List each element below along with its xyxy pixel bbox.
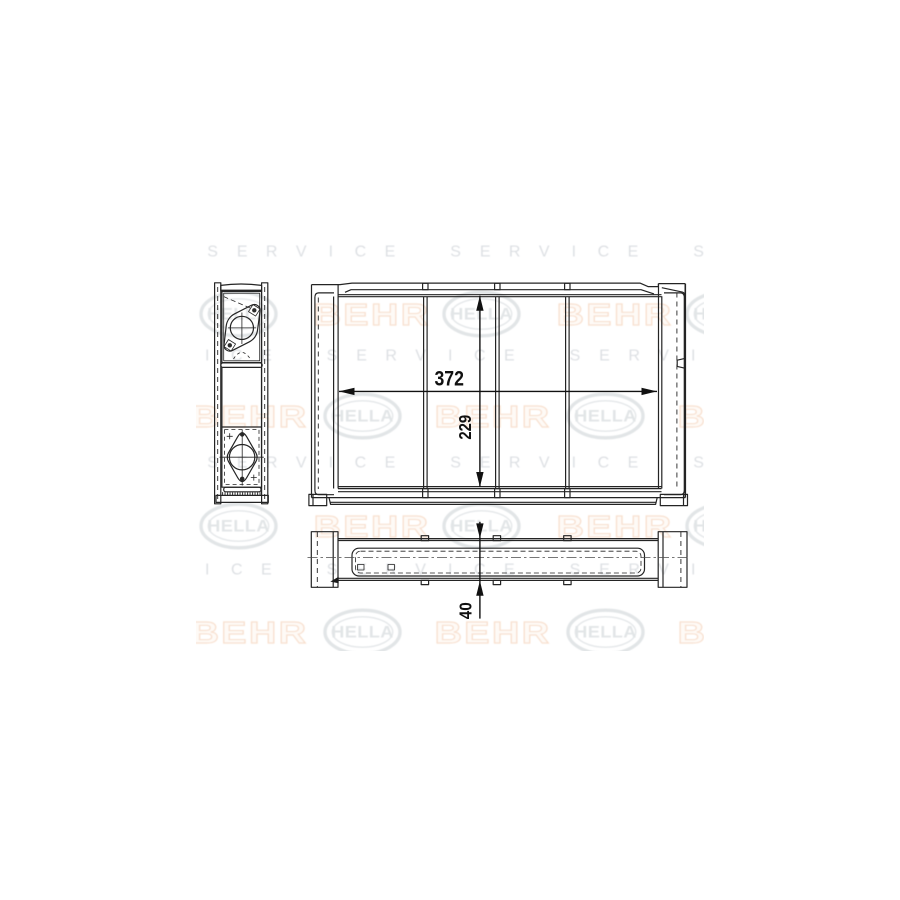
svg-text:I: I [572, 244, 576, 261]
svg-text:S: S [450, 244, 461, 261]
svg-text:R: R [266, 244, 278, 261]
svg-text:229: 229 [456, 415, 475, 440]
svg-text:C: C [355, 455, 367, 472]
svg-text:S: S [570, 348, 581, 365]
svg-text:R: R [385, 348, 397, 365]
svg-text:V: V [658, 562, 669, 579]
svg-text:E: E [385, 244, 396, 261]
svg-text:R: R [628, 348, 640, 365]
svg-text:V: V [415, 348, 426, 365]
svg-text:E: E [628, 455, 639, 472]
svg-text:R: R [509, 455, 521, 472]
svg-text:S: S [693, 455, 704, 472]
svg-text:C: C [598, 244, 610, 261]
svg-text:I: I [329, 455, 333, 472]
svg-text:C: C [231, 562, 243, 579]
svg-text:I: I [329, 244, 333, 261]
svg-text:V: V [658, 348, 669, 365]
svg-text:372: 372 [434, 367, 463, 391]
svg-text:E: E [385, 455, 396, 472]
svg-text:E: E [237, 244, 248, 261]
svg-text:V: V [296, 455, 307, 472]
svg-text:I: I [205, 562, 209, 579]
svg-text:R: R [509, 244, 521, 261]
svg-text:S: S [207, 455, 218, 472]
svg-text:C: C [355, 244, 367, 261]
svg-text:E: E [504, 348, 515, 365]
svg-text:I: I [691, 562, 695, 579]
svg-text:E: E [261, 562, 272, 579]
svg-text:40: 40 [455, 602, 475, 619]
svg-text:I: I [572, 455, 576, 472]
svg-text:C: C [598, 455, 610, 472]
svg-text:I: I [448, 348, 452, 365]
svg-text:E: E [599, 348, 610, 365]
svg-text:E: E [480, 244, 491, 261]
svg-text:S: S [207, 244, 218, 261]
svg-text:E: E [356, 348, 367, 365]
svg-text:S: S [327, 562, 338, 579]
svg-text:I: I [205, 348, 209, 365]
svg-text:E: E [480, 455, 491, 472]
svg-text:E: E [261, 348, 272, 365]
svg-text:I: I [691, 348, 695, 365]
svg-text:S: S [450, 455, 461, 472]
svg-text:V: V [296, 244, 307, 261]
svg-text:S: S [693, 244, 704, 261]
svg-text:V: V [539, 244, 550, 261]
svg-text:E: E [628, 244, 639, 261]
svg-text:S: S [327, 348, 338, 365]
svg-text:V: V [539, 455, 550, 472]
